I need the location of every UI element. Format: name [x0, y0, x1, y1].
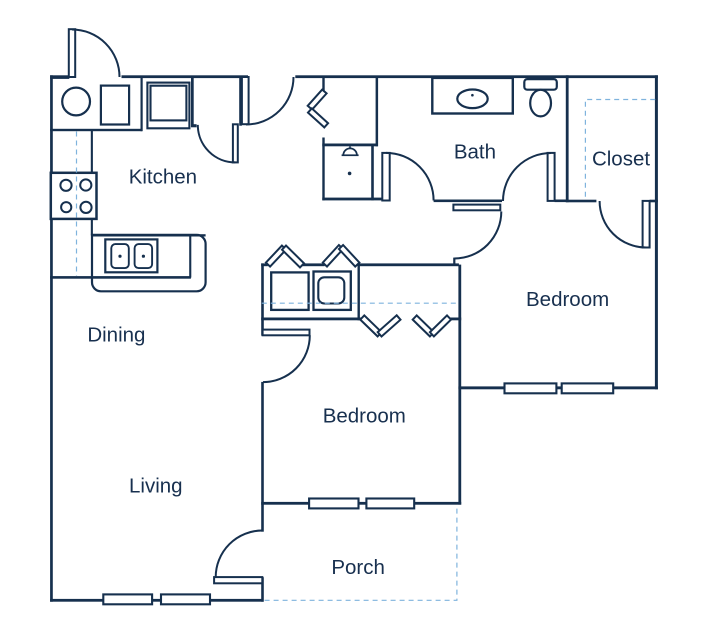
svg-text:Bedroom: Bedroom [526, 288, 609, 311]
svg-text:Living: Living [129, 474, 183, 497]
svg-text:Bath: Bath [454, 141, 496, 164]
svg-text:Kitchen: Kitchen [129, 166, 197, 189]
svg-text:Closet: Closet [592, 147, 650, 170]
svg-text:Porch: Porch [331, 556, 385, 579]
svg-text:Bedroom: Bedroom [323, 404, 406, 427]
svg-text:Dining: Dining [87, 324, 145, 347]
